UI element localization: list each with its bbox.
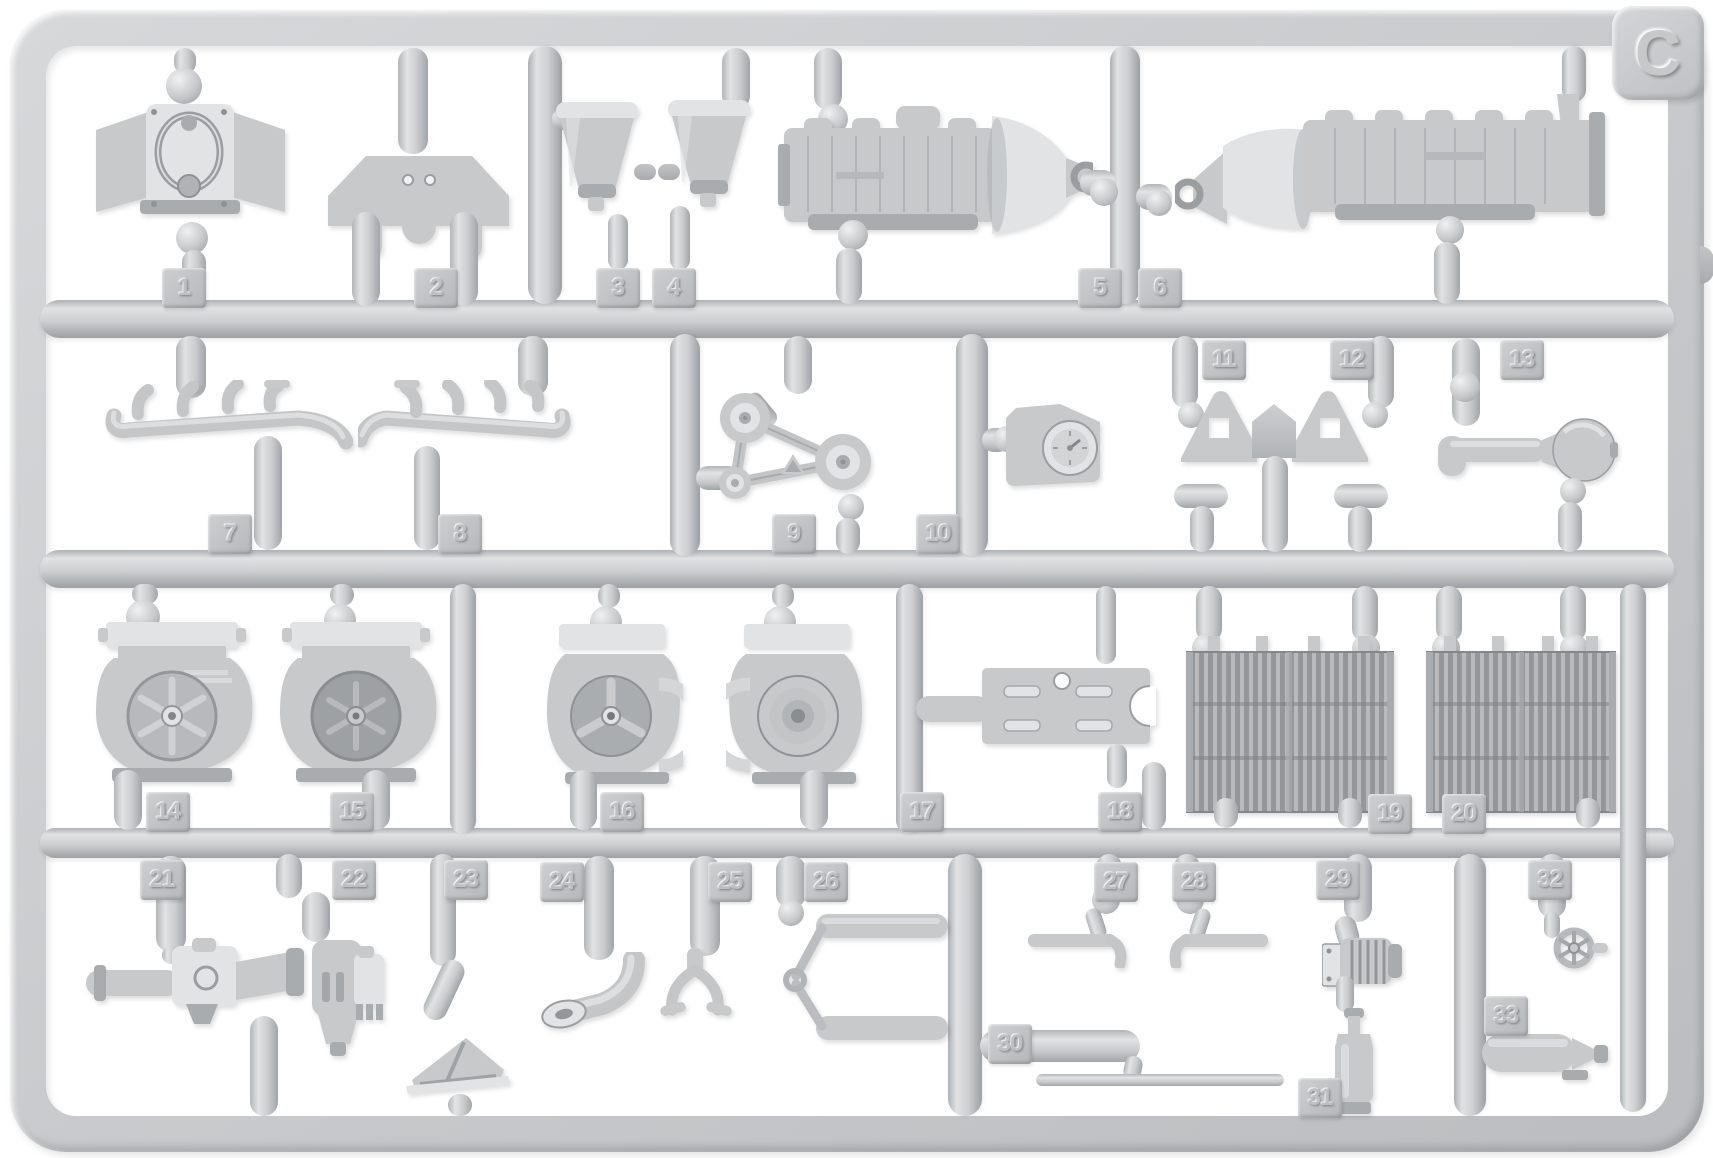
gate-stub [1107,744,1127,788]
part-tag-3: 3 [596,268,640,308]
gate-stub [250,1016,278,1116]
gate-stub [670,206,690,270]
part-number-label: 5 [1094,274,1106,302]
part-14-fan-housing [86,596,258,784]
gate-stub [1336,976,1354,1012]
part-tag-21: 21 [140,860,184,900]
gate-stub [836,518,860,554]
part-number-label: 27 [1104,868,1129,896]
part-number-label: 28 [1182,868,1207,896]
gate-ball [1560,478,1586,504]
part-tag-26: 26 [804,862,848,902]
part-number-label: 9 [788,520,800,548]
part-tag-31: 31 [1298,1078,1342,1118]
part-number-label: 15 [340,798,365,826]
gate-stub [1558,502,1582,552]
part-tag-5: 5 [1078,268,1122,308]
gate-stub [1576,798,1600,828]
part-tag-32: 32 [1528,860,1572,900]
part-number-label: 14 [156,798,181,826]
part-number-label: 18 [1108,798,1133,826]
part-number-label: 3 [612,274,624,302]
gate-stub [352,212,380,306]
part-24-filler-pipe [536,952,648,1030]
part-number-label: 4 [668,274,680,302]
part-tag-17: 17 [900,792,944,832]
part-18-mounting-plate [916,660,1156,752]
gate-stub [398,48,428,154]
part-number-label: 6 [1154,274,1166,302]
part-30-tie-rod [1036,1074,1284,1086]
part-tag-29: 29 [1316,860,1360,900]
part-tag-30: 30 [988,1024,1032,1064]
part-1-engine-timing-cover [88,96,293,231]
part-number-label: 29 [1326,866,1351,894]
part-number-label: 1 [178,274,190,302]
part-10-pulley-bracket [1002,402,1107,494]
part-number-label: 16 [610,798,635,826]
part-tag-9: 9 [772,514,816,554]
part-12-mount-bracket [1286,386,1374,468]
part-16-fan-housing [543,596,683,786]
part-20-radiator-core [1426,636,1616,816]
part-11-mount-bracket [1175,386,1263,468]
part-32-valve-handwheel [1548,922,1612,974]
gate-stub [1434,242,1460,304]
gate-stub [1096,586,1116,664]
part-number-label: 24 [550,868,575,896]
gate-stub [608,214,628,270]
part-number-label: 17 [910,798,935,826]
gate-stub [302,892,330,942]
part-19-radiator-core [1186,636,1394,816]
part-29-oil-filter [1322,928,1410,990]
gate-stub [1348,506,1372,552]
part-number-label: 31 [1308,1084,1333,1112]
gate-stub [1190,506,1214,552]
gate-foot [1334,484,1388,508]
part-number-label: 22 [342,866,367,894]
part-tag-15: 15 [330,792,374,832]
part-15-fan-housing [270,596,442,784]
part-number-label: 33 [1494,1002,1519,1030]
part-tag-1: 1 [162,268,206,308]
gate-ball [1436,216,1464,244]
part-number-label: 11 [1212,346,1235,374]
part-tag-22: 22 [332,860,376,900]
part-tag-11: 11 [1202,340,1246,380]
part-number-label: 20 [1452,800,1477,828]
part-27-hand-lever [1028,926,1128,968]
part-tag-18: 18 [1098,792,1142,832]
part-tag-14: 14 [146,792,190,832]
gate-stub [1262,456,1288,552]
part-number-label: 7 [224,520,236,548]
part-number-label: 23 [454,866,479,894]
gate-foot [1174,484,1228,508]
part-number-label: 10 [926,520,951,548]
part-tag-6: 6 [1138,268,1182,308]
part-tag-4: 4 [652,268,696,308]
part-13-air-cleaner [1438,412,1618,488]
part-21-carburetor [86,938,306,1026]
part-22-fuel-pump [296,938,391,1068]
gate-stub [1338,798,1362,828]
part-25-clutch-fork [648,948,743,1020]
part-number-label: 25 [718,868,743,896]
part-tag-19: 19 [1368,794,1412,834]
gate-stub [814,48,842,110]
runner-horizontal-3 [40,550,1674,588]
part-tag-10: 10 [916,514,960,554]
gate-stub [800,770,828,830]
gate-stub [448,1094,472,1116]
part-4-intake-funnel [662,96,757,211]
part-7-exhaust-manifold [98,380,353,455]
sprue-photo: 1 2 3 4 5 6 7 8 9 10 11 12 13 14 15 16 1… [0,0,1713,1158]
part-tag-33: 33 [1484,996,1528,1036]
frame-side-nub [1700,246,1713,284]
part-26-control-linkage [782,904,962,1054]
gate-ball [838,494,864,520]
part-tag-23: 23 [444,860,488,900]
part-6-engine-block-right [1175,92,1610,238]
part-5-engine-block-left [778,106,1093,246]
runner-vertical-row1-b [1110,46,1140,304]
part-tag-8: 8 [438,514,482,554]
gate-stub [114,770,142,830]
sprue-letter-tab: C [1612,6,1704,100]
gate-stub [584,856,614,960]
part-tag-7: 7 [208,514,252,554]
part-number-label: 30 [998,1030,1023,1058]
runner-vertical-row3-a [450,584,476,834]
part-tag-24: 24 [540,862,584,902]
part-number-label: 13 [1510,346,1535,374]
part-17-fan-housing [726,596,866,786]
gate-stub [414,446,440,550]
part-tag-16: 16 [600,792,644,832]
gate-nub [634,164,656,180]
part-tag-13: 13 [1500,340,1544,380]
part-tag-20: 20 [1442,794,1486,834]
gate-stub [570,770,597,830]
part-number-label: 12 [1340,346,1365,374]
part-number-label: 2 [430,274,442,302]
part-3-intake-funnel [550,98,645,216]
part-tag-2: 2 [414,268,458,308]
sprue-letter: C [1635,16,1681,90]
runner-horizontal-2 [40,300,1674,338]
part-8-exhaust-manifold [358,380,578,455]
gate-ball [1146,190,1172,216]
part-number-label: 32 [1538,866,1563,894]
gate-stub [276,854,302,898]
part-number-label: 8 [454,520,466,548]
part-number-label: 19 [1378,800,1403,828]
gate-ball [1450,372,1480,402]
part-tag-27: 27 [1094,862,1138,902]
gate-stub [1142,762,1166,830]
gate-stub [254,436,282,550]
part-number-label: 21 [150,866,175,894]
gate-stub [836,248,862,304]
gate-stub [1214,798,1238,828]
part-number-label: 26 [814,868,839,896]
part-28-hand-lever [1168,926,1268,968]
gate-ball [1090,178,1118,206]
part-tag-25: 25 [708,862,752,902]
part-tag-12: 12 [1330,340,1374,380]
runner-vertical-right [1620,584,1646,1112]
gate-ball [838,220,868,250]
part-tag-28: 28 [1172,862,1216,902]
gate-stub [784,336,812,394]
